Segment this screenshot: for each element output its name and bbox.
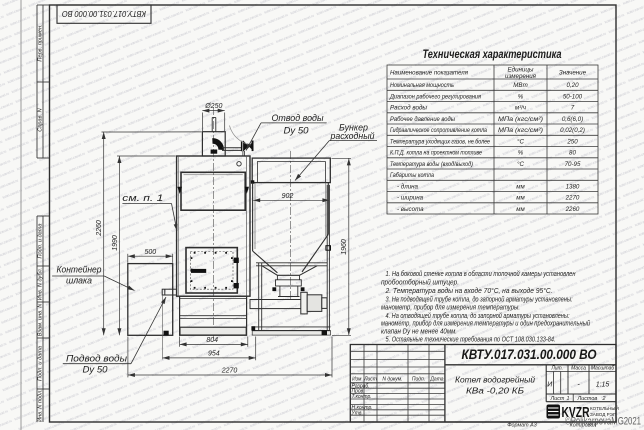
svg-text:МПа (кгс/см²): МПа (кгс/см²) bbox=[498, 127, 543, 134]
svg-text:80: 80 bbox=[569, 150, 576, 157]
svg-text:1: 1 bbox=[567, 396, 570, 402]
svg-text:измерения: измерения bbox=[505, 73, 537, 80]
svg-text:мм: мм bbox=[516, 195, 525, 202]
svg-text:м³/ч: м³/ч bbox=[515, 105, 527, 112]
svg-text:°С: °С bbox=[517, 161, 524, 168]
svg-text:0,20: 0,20 bbox=[566, 82, 579, 89]
svg-text:Лит.: Лит. bbox=[550, 366, 563, 372]
svg-text:Подп. и дата: Подп. и дата bbox=[38, 346, 44, 381]
svg-text:Дата: Дата bbox=[429, 377, 443, 383]
svg-text:КОТЕЛЬНЫЙ: КОТЕЛЬНЫЙ bbox=[590, 404, 619, 411]
svg-text:1380: 1380 bbox=[566, 183, 580, 190]
svg-text:Температура воды (вход/выход): Температура воды (вход/выход) bbox=[390, 161, 473, 168]
svg-text:шлака: шлака bbox=[66, 276, 92, 286]
svg-text:%: % bbox=[518, 93, 524, 100]
svg-text:2260: 2260 bbox=[565, 206, 580, 213]
svg-text:902: 902 bbox=[282, 193, 294, 200]
svg-text:КВа -0,20 КБ: КВа -0,20 КБ bbox=[466, 387, 525, 396]
svg-text:954: 954 bbox=[208, 351, 220, 358]
svg-text:N докум.: N докум. bbox=[382, 377, 402, 383]
svg-text:К.П.Д. котла на проектном топл: К.П.Д. котла на проектном топливе bbox=[390, 150, 482, 157]
svg-text:Техническая характеристика: Техническая характеристика bbox=[423, 49, 562, 61]
svg-text:Утв.: Утв. bbox=[352, 410, 363, 416]
svg-text:Листов: Листов bbox=[577, 396, 598, 402]
svg-text:МПа (кгс/см²): МПа (кгс/см²) bbox=[498, 116, 543, 123]
svg-text:50-100: 50-100 bbox=[563, 93, 583, 100]
svg-text:Габариты котла: Габариты котла bbox=[390, 172, 434, 179]
svg-text:см. п. 1: см. п. 1 bbox=[122, 193, 163, 204]
svg-text:Т.контр.: Т.контр. bbox=[352, 394, 372, 400]
svg-text:Подп. и дата: Подп. и дата bbox=[38, 223, 44, 258]
svg-text:МВт: МВт bbox=[513, 82, 527, 89]
svg-text:расходный: расходный bbox=[330, 131, 375, 141]
svg-text:2260: 2260 bbox=[96, 220, 103, 237]
svg-text:0,02(0,2): 0,02(0,2) bbox=[560, 127, 585, 134]
svg-text:%: % bbox=[518, 150, 524, 157]
svg-text:804: 804 bbox=[206, 337, 218, 344]
svg-text:1990: 1990 bbox=[112, 235, 119, 251]
svg-text:Наименование показателя: Наименование показателя bbox=[390, 70, 469, 77]
svg-text:1:15: 1:15 bbox=[596, 382, 610, 389]
svg-text:Значение: Значение bbox=[559, 70, 587, 77]
svg-text:Рабочее давление воды: Рабочее давление воды bbox=[390, 116, 455, 123]
svg-text:Изм: Изм bbox=[352, 377, 362, 383]
svg-text:КВТУ.017.031.00.000 ВО: КВТУ.017.031.00.000 ВО bbox=[62, 9, 146, 19]
svg-text:КВТУ.017.031.00.000 ВО: КВТУ.017.031.00.000 ВО bbox=[462, 347, 597, 362]
svg-text:Инв. N подл.: Инв. N подл. bbox=[38, 389, 44, 422]
svg-text:Диапазон рабочего регулировани: Диапазон рабочего регулирования bbox=[389, 93, 482, 100]
svg-text:1960: 1960 bbox=[341, 239, 348, 255]
svg-text:Инв. N дубл.: Инв. N дубл. bbox=[38, 268, 44, 300]
svg-text:2270: 2270 bbox=[565, 195, 580, 202]
svg-text:Перв. примен.: Перв. примен. bbox=[38, 24, 44, 61]
svg-text:Подп.: Подп. bbox=[412, 377, 425, 383]
svg-text:2270: 2270 bbox=[221, 368, 238, 375]
svg-text:Гидравлическое сопротивление к: Гидравлическое сопротивление котла bbox=[390, 127, 487, 134]
svg-text:©PolikarpovaMG2021: ©PolikarpovaMG2021 bbox=[565, 416, 641, 428]
svg-text:Лист: Лист bbox=[363, 377, 377, 383]
svg-text:Отвод воды: Отвод воды bbox=[272, 113, 324, 123]
svg-text:Лист: Лист bbox=[550, 396, 565, 402]
svg-text:Контейнер: Контейнер bbox=[57, 265, 102, 275]
svg-text:Температура уходящих газов, не: Температура уходящих газов, не более bbox=[390, 138, 490, 145]
svg-text:250: 250 bbox=[566, 138, 578, 145]
svg-text:Масштаб: Масштаб bbox=[591, 366, 615, 372]
svg-text:5. Остальные технические треб: 5. Остальные технические требования по О… bbox=[386, 335, 556, 344]
svg-text:Dу 50: Dу 50 bbox=[284, 126, 310, 136]
svg-text:Формат А3: Формат А3 bbox=[507, 423, 537, 429]
svg-text:Масса: Масса bbox=[571, 366, 586, 372]
svg-text:Котел водогрейный: Котел водогрейный bbox=[455, 376, 535, 385]
svg-text:500: 500 bbox=[144, 249, 156, 256]
svg-text:мм: мм bbox=[516, 183, 525, 190]
svg-text:Подвод воды: Подвод воды bbox=[66, 354, 127, 364]
svg-text:70-95: 70-95 bbox=[565, 161, 581, 168]
svg-text:°С: °С bbox=[517, 138, 524, 145]
svg-text:Ø250: Ø250 bbox=[204, 103, 222, 110]
svg-text:0,6(6,0): 0,6(6,0) bbox=[562, 116, 583, 123]
svg-text:7: 7 bbox=[571, 105, 575, 112]
svg-text:2: 2 bbox=[602, 396, 606, 402]
svg-text:мм: мм bbox=[516, 206, 525, 213]
svg-text:Dу 50: Dу 50 bbox=[83, 365, 109, 375]
svg-text:- ширина: - ширина bbox=[397, 195, 424, 202]
svg-text:- высота: - высота bbox=[397, 206, 424, 213]
svg-text:Справ. N: Справ. N bbox=[38, 107, 44, 131]
svg-text:Номинальная мощность: Номинальная мощность bbox=[390, 82, 454, 89]
svg-text:Взам. инв. N: Взам. инв. N bbox=[38, 303, 44, 337]
svg-text:Расход воды: Расход воды bbox=[390, 105, 427, 112]
svg-text:- длина: - длина bbox=[397, 183, 419, 190]
